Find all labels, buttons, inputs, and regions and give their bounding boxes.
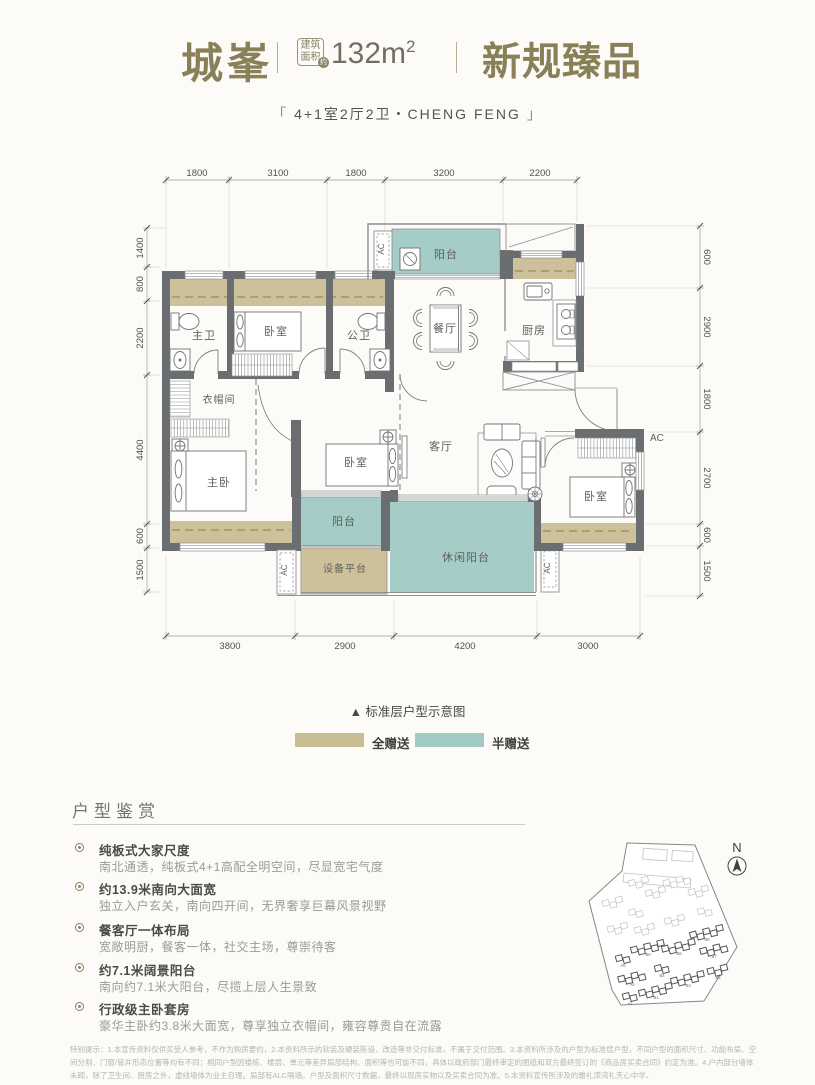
svg-text:2900: 2900 xyxy=(701,316,712,337)
svg-text:3800: 3800 xyxy=(219,641,240,652)
svg-text:1500: 1500 xyxy=(135,559,146,580)
svg-text:3000: 3000 xyxy=(577,641,598,652)
svg-text:AC: AC xyxy=(650,433,664,444)
svg-text:B6: B6 xyxy=(676,951,682,956)
svg-text:阳台: 阳台 xyxy=(332,514,356,528)
svg-text:2200: 2200 xyxy=(529,168,550,179)
svg-text:客厅: 客厅 xyxy=(429,439,453,453)
svg-text:主卫: 主卫 xyxy=(192,329,216,342)
svg-text:AC: AC xyxy=(280,564,289,575)
svg-text:1500: 1500 xyxy=(701,560,712,581)
svg-text:600: 600 xyxy=(701,527,712,543)
svg-text:AC: AC xyxy=(543,562,552,573)
svg-text:3200: 3200 xyxy=(433,168,454,179)
svg-text:N: N xyxy=(732,840,741,855)
svg-text:厨房: 厨房 xyxy=(522,324,546,337)
svg-text:1400: 1400 xyxy=(135,237,146,258)
svg-text:1800: 1800 xyxy=(701,388,712,409)
svg-text:B3: B3 xyxy=(685,983,691,988)
svg-text:餐厅: 餐厅 xyxy=(433,321,457,335)
svg-text:阳台: 阳台 xyxy=(434,247,458,261)
svg-text:卧室: 卧室 xyxy=(264,324,288,338)
svg-text:A6: A6 xyxy=(620,963,626,968)
svg-text:公卫: 公卫 xyxy=(347,330,371,342)
svg-text:4400: 4400 xyxy=(135,439,146,460)
svg-text:2700: 2700 xyxy=(701,467,712,488)
svg-text:B8: B8 xyxy=(704,937,710,942)
svg-text:2900: 2900 xyxy=(334,641,355,652)
svg-text:卧室: 卧室 xyxy=(344,455,368,469)
svg-text:卧室: 卧室 xyxy=(584,489,608,503)
svg-text:设备平台: 设备平台 xyxy=(323,562,367,575)
svg-text:主卧: 主卧 xyxy=(207,476,231,489)
svg-text:4200: 4200 xyxy=(454,641,475,652)
svg-text:AC: AC xyxy=(377,243,386,254)
svg-text:2200: 2200 xyxy=(135,327,146,348)
svg-text:1800: 1800 xyxy=(345,168,366,179)
svg-text:1800: 1800 xyxy=(186,168,207,179)
svg-text:A5: A5 xyxy=(629,982,635,987)
svg-text:600: 600 xyxy=(135,528,146,544)
svg-text:B7: B7 xyxy=(711,954,717,959)
svg-text:B4: B4 xyxy=(659,973,665,978)
svg-text:B5: B5 xyxy=(645,952,651,957)
svg-text:衣帽间: 衣帽间 xyxy=(203,393,236,406)
svg-text:3100: 3100 xyxy=(267,168,288,179)
svg-text:800: 800 xyxy=(135,276,146,292)
svg-text:休闲阳台: 休闲阳台 xyxy=(442,550,490,564)
svg-text:600: 600 xyxy=(701,249,712,265)
svg-text:B2: B2 xyxy=(715,975,721,980)
svg-text:B1: B1 xyxy=(653,995,659,1000)
svg-text:A1: A1 xyxy=(627,1001,633,1006)
